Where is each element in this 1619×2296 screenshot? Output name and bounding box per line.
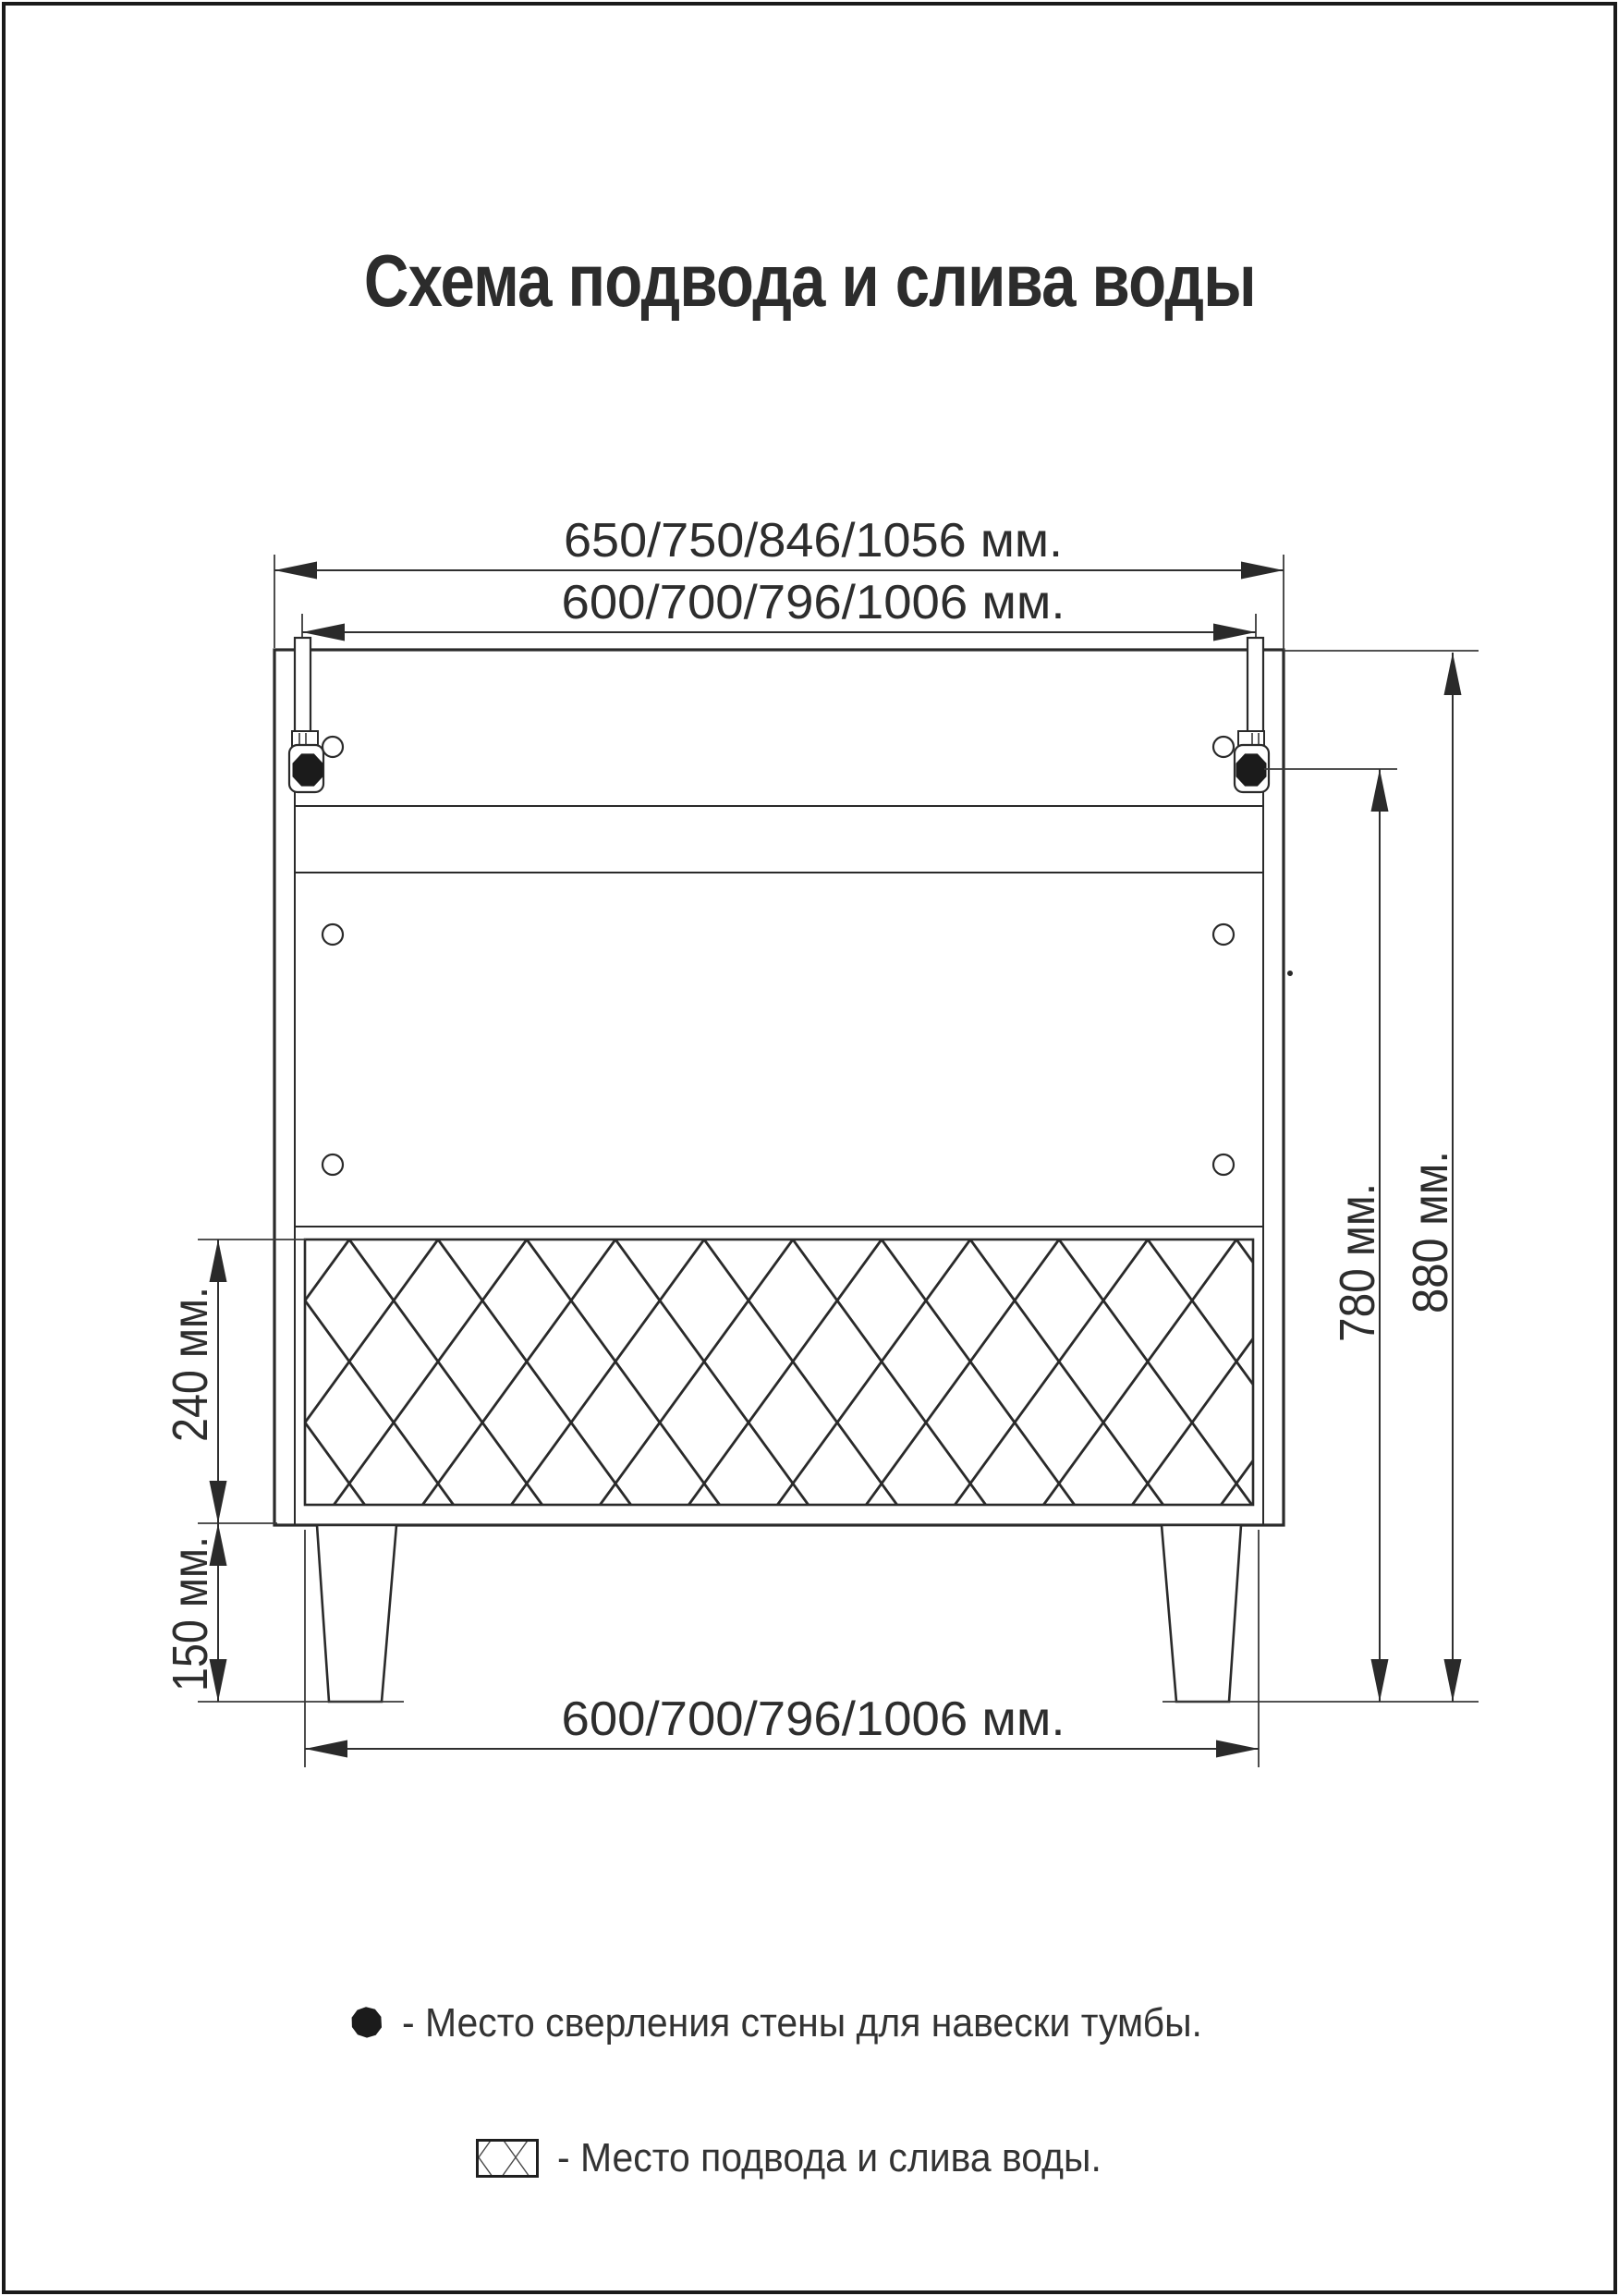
black-octagon-dot-icon xyxy=(347,2003,387,2044)
cross-hatched-rectangle-icon xyxy=(476,2139,539,2178)
drill-point-right-icon xyxy=(1236,753,1267,786)
legend-label-drill-point: - Место сверления стены для навески тумб… xyxy=(402,2000,1202,2046)
page: 650/750/846/1056 мм. 600/700/796/1006 мм… xyxy=(0,0,1619,2296)
mounting-hardware xyxy=(289,638,1269,792)
leg-left xyxy=(317,1525,396,1702)
page-title: Схема подвода и слива воды xyxy=(0,237,1619,347)
water-zone-hatch-area xyxy=(305,1240,1253,1505)
hole-mid-right xyxy=(1213,924,1234,945)
mounting-rail-right xyxy=(1248,638,1263,733)
leg-right xyxy=(1162,1525,1241,1702)
legend-label-water-zone: - Место подвода и слива воды. xyxy=(557,2135,1102,2181)
drill-point-left-icon xyxy=(293,753,323,786)
mounting-rail-left xyxy=(295,638,310,733)
hole-low-left xyxy=(323,1154,343,1175)
hole-top-left xyxy=(323,737,343,757)
hole-top-right xyxy=(1213,737,1234,757)
hole-mid-left xyxy=(323,924,343,945)
dim-label-bottom: 600/700/796/1006 мм. xyxy=(562,1692,1065,1746)
dim-label-top-inner: 600/700/796/1006 мм. xyxy=(562,576,1065,629)
small-dot xyxy=(1287,971,1293,976)
hole-low-right xyxy=(1213,1154,1234,1175)
legend-row-drill-point: - Место сверления стены для навески тумб… xyxy=(347,1999,1262,2047)
dimension-lines xyxy=(218,570,1453,1749)
dim-label-water-zone-height: 240 мм. xyxy=(163,1287,218,1442)
assembly-holes xyxy=(323,737,1234,1175)
legend-row-water-zone: - Место подвода и слива воды. xyxy=(476,2138,1142,2179)
dim-label-leg-height: 150 мм. xyxy=(163,1536,218,1691)
dim-label-top-outer: 650/750/846/1056 мм. xyxy=(564,514,1063,568)
dim-label-drill-height: 780 мм. xyxy=(1330,1183,1385,1342)
legs xyxy=(317,1525,1241,1702)
dim-label-total-height: 880 мм. xyxy=(1403,1151,1458,1313)
page-title-text: Схема подвода и слива воды xyxy=(364,237,1256,325)
